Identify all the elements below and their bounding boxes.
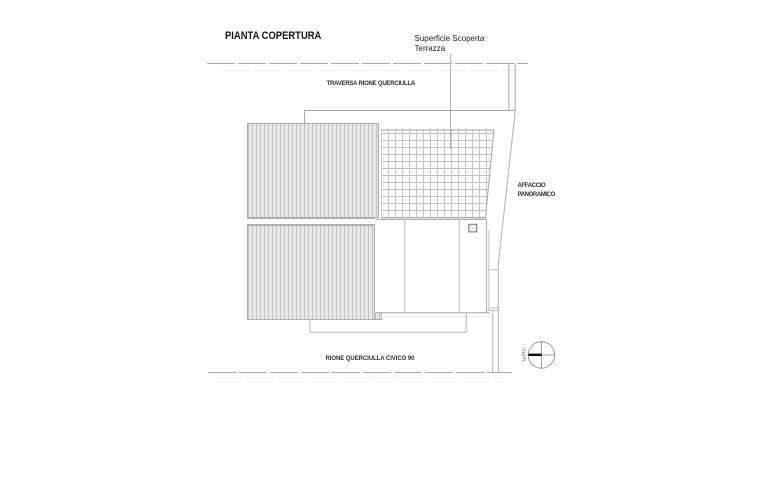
svg-text:NORD: NORD [522, 348, 527, 362]
